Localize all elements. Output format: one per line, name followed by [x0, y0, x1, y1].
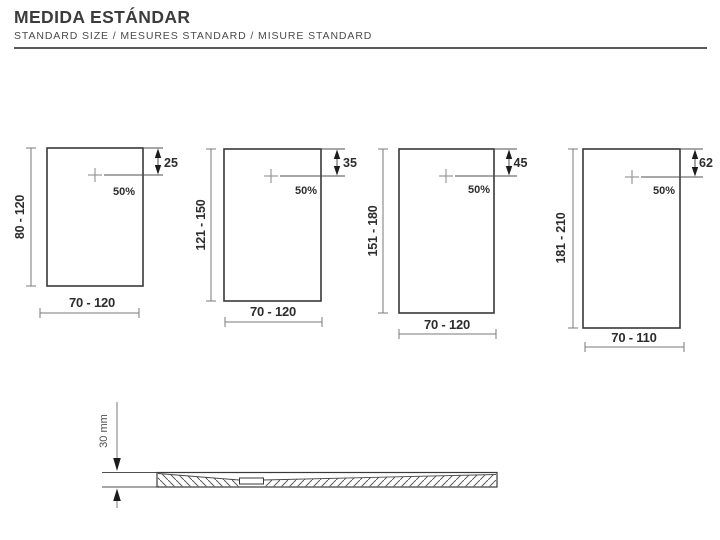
width-range-label: 70 - 110	[611, 330, 656, 345]
width-dimension: 70 - 110	[585, 330, 684, 352]
height-dimension: 181 - 210	[554, 149, 578, 328]
tray-diagram-1: 80 - 120 70 - 120 25 50%	[13, 148, 178, 318]
page: MEDIDA ESTÁNDAR STANDARD SIZE / MESURES …	[0, 0, 720, 540]
drain-offset-label: 62	[699, 156, 713, 170]
width-dimension: 70 - 120	[40, 295, 139, 318]
thickness-label: 30 mm	[98, 414, 110, 448]
drain-offset-label: 35	[343, 156, 357, 170]
height-range-label: 80 - 120	[13, 195, 27, 240]
tray-section-profile	[157, 473, 497, 488]
drain-offset-dimension: 62	[692, 150, 713, 177]
drain-position-label: 50%	[468, 184, 490, 196]
thickness-dimension: 30 mm	[98, 402, 121, 508]
tray-diagram-2: 121 - 150 70 - 120 35 50%	[194, 149, 357, 327]
width-range-label: 70 - 120	[69, 295, 115, 310]
drain-outlet	[240, 478, 264, 484]
drain-position-label: 50%	[113, 186, 135, 198]
drain-position-label: 50%	[295, 185, 317, 197]
drawing-area: 80 - 120 70 - 120 25 50%	[0, 0, 720, 540]
drain-cross-icon	[625, 170, 639, 184]
drain-cross-icon	[439, 169, 453, 183]
drain-offset-dimension: 45	[506, 150, 528, 176]
width-range-label: 70 - 120	[424, 317, 470, 332]
height-range-label: 121 - 150	[194, 199, 208, 250]
width-dimension: 70 - 120	[225, 304, 322, 327]
width-dimension: 70 - 120	[399, 317, 496, 339]
tray-diagram-3: 151 - 180 70 - 120 45 50%	[366, 149, 527, 339]
tray-outline	[224, 149, 321, 301]
height-dimension: 121 - 150	[194, 149, 216, 301]
width-range-label: 70 - 120	[250, 304, 296, 319]
drain-offset-dimension: 35	[334, 150, 357, 176]
section-diagram: 30 mm	[98, 402, 497, 508]
height-dimension: 151 - 180	[366, 149, 388, 313]
drain-offset-dimension: 25	[155, 149, 178, 175]
drain-position-label: 50%	[653, 185, 675, 197]
drain-cross-icon	[264, 169, 278, 183]
drain-offset-label: 45	[514, 156, 528, 170]
height-dimension: 80 - 120	[13, 148, 36, 286]
height-range-label: 151 - 180	[366, 205, 380, 256]
height-range-label: 181 - 210	[554, 212, 568, 263]
tray-diagram-4: 181 - 210 70 - 110 62 50%	[554, 149, 713, 352]
drain-cross-icon	[88, 168, 102, 182]
drain-offset-label: 25	[164, 156, 178, 170]
